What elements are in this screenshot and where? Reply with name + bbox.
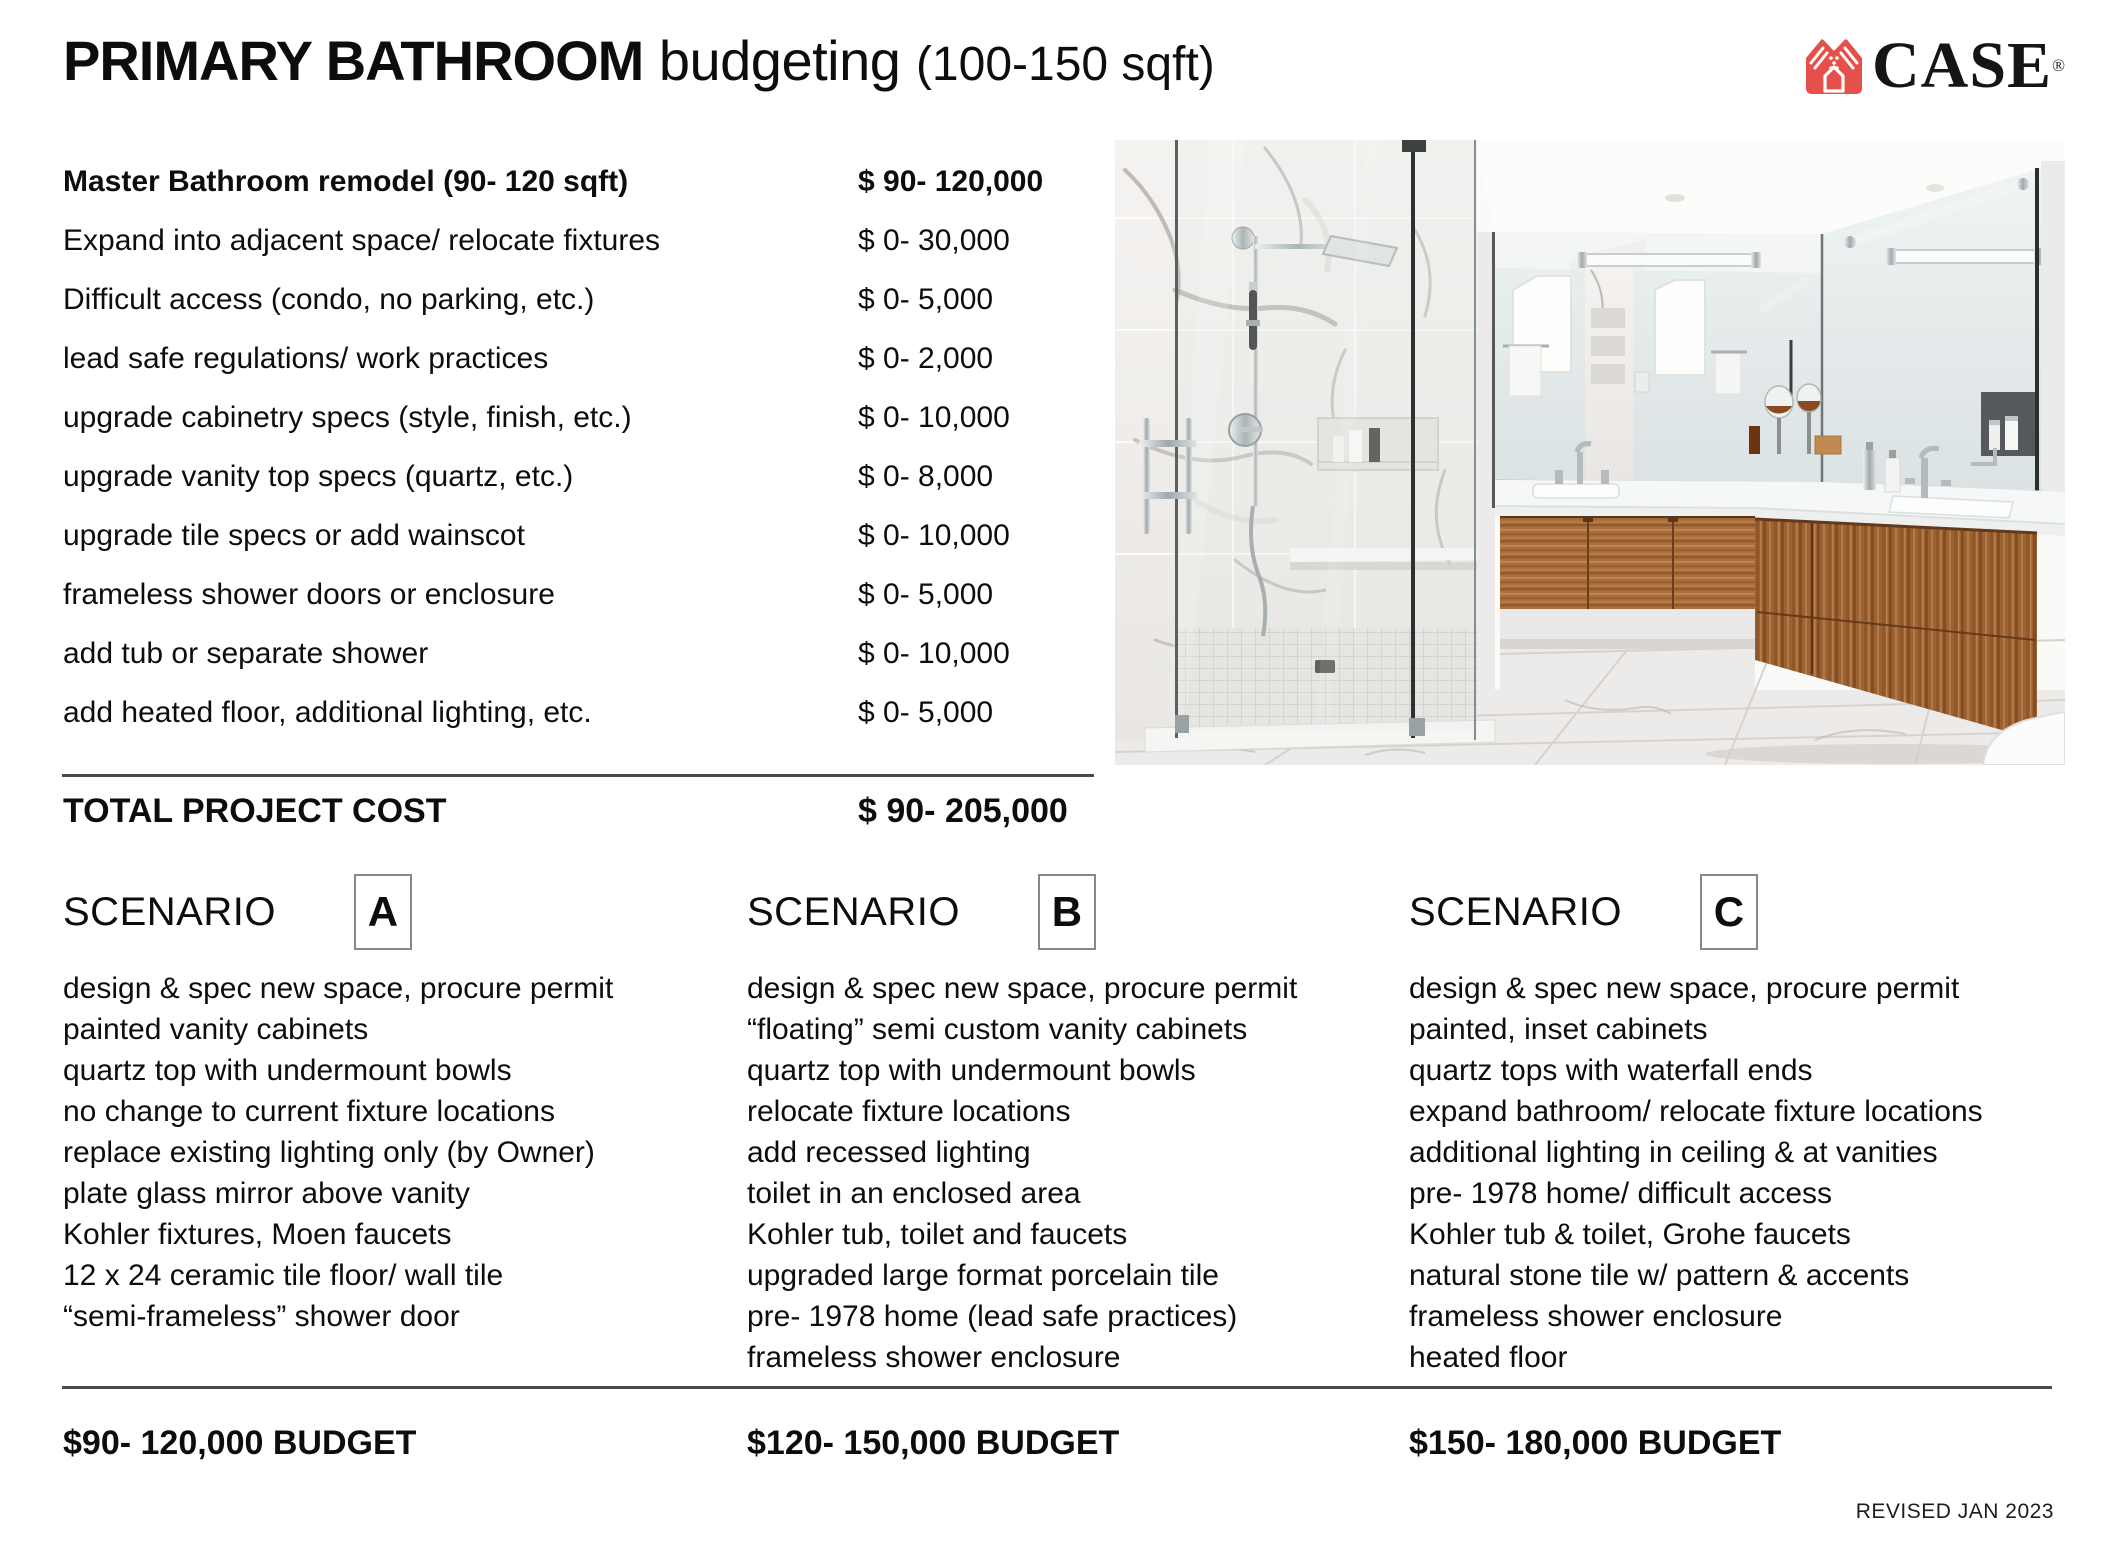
total-price: $ 90- 205,000 (858, 788, 1068, 834)
cost-item-price: $ 0- 30,000 (858, 211, 1010, 270)
list-item: painted, inset cabinets (1409, 1009, 2069, 1050)
table-row: add heated floor, additional lighting, e… (63, 683, 1093, 742)
list-item: Kohler fixtures, Moen faucets (63, 1214, 723, 1255)
registered-mark: ® (2052, 56, 2065, 76)
cost-item-label: add heated floor, additional lighting, e… (63, 696, 592, 729)
cost-item-price: $ 0- 10,000 (858, 506, 1010, 565)
list-item: frameless shower enclosure (747, 1337, 1407, 1378)
table-row: Expand into adjacent space/ relocate fix… (63, 211, 1093, 270)
table-row: add tub or separate shower $ 0- 10,000 (63, 624, 1093, 683)
table-row: upgrade cabinetry specs (style, finish, … (63, 388, 1093, 447)
page-title-main: PRIMARY BATHROOM (63, 29, 643, 92)
list-item: “semi-frameless” shower door (63, 1296, 723, 1337)
cost-item-label: upgrade vanity top specs (quartz, etc.) (63, 460, 573, 493)
budget-divider (62, 1386, 2052, 1389)
table-row: Master Bathroom remodel (90- 120 sqft) $… (63, 152, 1093, 211)
page-title-size: (100-150 sqft) (916, 38, 1215, 91)
list-item: natural stone tile w/ pattern & accents (1409, 1255, 2069, 1296)
list-item: heated floor (1409, 1337, 2069, 1378)
cost-item-price: $ 0- 5,000 (858, 270, 993, 329)
list-item: relocate fixture locations (747, 1091, 1407, 1132)
list-item: toilet in an enclosed area (747, 1173, 1407, 1214)
list-item: design & spec new space, procure permit (747, 968, 1407, 1009)
scenario-letter-box: B (1038, 874, 1096, 950)
budget-b: $120- 150,000 BUDGET (747, 1424, 1119, 1463)
cost-item-label: Difficult access (condo, no parking, etc… (63, 283, 594, 316)
scenario-item-list: design & spec new space, procure permit … (1409, 968, 2069, 1378)
case-house-icon (1802, 36, 1866, 96)
list-item: quartz top with undermount bowls (63, 1050, 723, 1091)
total-divider (62, 774, 1094, 777)
list-item: add recessed lighting (747, 1132, 1407, 1173)
list-item: quartz tops with waterfall ends (1409, 1050, 2069, 1091)
list-item: design & spec new space, procure permit (1409, 968, 2069, 1009)
total-row: TOTAL PROJECT COST $ 90- 205,000 (63, 788, 1093, 834)
page-title-sub: budgeting (659, 29, 901, 92)
scenario-letter-box: C (1700, 874, 1758, 950)
list-item: “floating” semi custom vanity cabinets (747, 1009, 1407, 1050)
shower-glass (1139, 140, 1495, 740)
budget-sheet: PRIMARY BATHROOM budgeting (100-150 sqft… (0, 0, 2112, 1548)
scenario-letter-box: A (354, 874, 412, 950)
scenario-a: SCENARIO A design & spec new space, proc… (63, 872, 723, 1337)
budget-c: $150- 180,000 BUDGET (1409, 1424, 1781, 1463)
table-row: frameless shower doors or enclosure $ 0-… (63, 565, 1093, 624)
scenario-label: SCENARIO (747, 890, 960, 935)
scenario-label: SCENARIO (63, 890, 276, 935)
scenario-item-list: design & spec new space, procure permit … (63, 968, 723, 1337)
list-item: Kohler tub & toilet, Grohe faucets (1409, 1214, 2069, 1255)
table-row: upgrade tile specs or add wainscot $ 0- … (63, 506, 1093, 565)
cost-table: Master Bathroom remodel (90- 120 sqft) $… (63, 152, 1093, 742)
cost-item-label: lead safe regulations/ work practices (63, 342, 548, 375)
list-item: frameless shower enclosure (1409, 1296, 2069, 1337)
cost-item-price: $ 0- 5,000 (858, 683, 993, 742)
total-label: TOTAL PROJECT COST (63, 792, 446, 830)
case-logo: CASE ® (1802, 36, 2065, 96)
list-item: pre- 1978 home (lead safe practices) (747, 1296, 1407, 1337)
list-item: Kohler tub, toilet and faucets (747, 1214, 1407, 1255)
revised-date: REVISED JAN 2023 (1856, 1500, 2054, 1524)
list-item: pre- 1978 home/ difficult access (1409, 1173, 2069, 1214)
cost-item-price: $ 0- 10,000 (858, 624, 1010, 683)
scenario-item-list: design & spec new space, procure permit … (747, 968, 1407, 1378)
cost-item-label: add tub or separate shower (63, 637, 428, 670)
cost-item-label: Expand into adjacent space/ relocate fix… (63, 224, 660, 257)
list-item: expand bathroom/ relocate fixture locati… (1409, 1091, 2069, 1132)
table-row: upgrade vanity top specs (quartz, etc.) … (63, 447, 1093, 506)
case-logo-text: CASE (1872, 36, 2052, 96)
list-item: replace existing lighting only (by Owner… (63, 1132, 723, 1173)
cost-item-price: $ 0- 2,000 (858, 329, 993, 388)
list-item: painted vanity cabinets (63, 1009, 723, 1050)
list-item: no change to current fixture locations (63, 1091, 723, 1132)
list-item: quartz top with undermount bowls (747, 1050, 1407, 1091)
cost-item-price: $ 0- 8,000 (858, 447, 993, 506)
list-item: upgraded large format porcelain tile (747, 1255, 1407, 1296)
list-item: plate glass mirror above vanity (63, 1173, 723, 1214)
cost-item-label: upgrade tile specs or add wainscot (63, 519, 525, 552)
scenario-c: SCENARIO C design & spec new space, proc… (1409, 872, 2069, 1378)
list-item: design & spec new space, procure permit (63, 968, 723, 1009)
scenario-b: SCENARIO B design & spec new space, proc… (747, 872, 1407, 1378)
cost-item-label: Master Bathroom remodel (90- 120 sqft) (63, 165, 628, 198)
list-item: additional lighting in ceiling & at vani… (1409, 1132, 2069, 1173)
cost-item-price: $ 0- 10,000 (858, 388, 1010, 447)
budget-a: $90- 120,000 BUDGET (63, 1424, 416, 1463)
page-title: PRIMARY BATHROOM budgeting (100-150 sqft… (63, 24, 1215, 102)
table-row: Difficult access (condo, no parking, etc… (63, 270, 1093, 329)
scenario-label: SCENARIO (1409, 890, 1622, 935)
cost-item-price: $ 0- 5,000 (858, 565, 993, 624)
bathroom-photo (1115, 140, 2065, 765)
table-row: lead safe regulations/ work practices $ … (63, 329, 1093, 388)
cost-item-label: upgrade cabinetry specs (style, finish, … (63, 401, 632, 434)
cost-item-label: frameless shower doors or enclosure (63, 578, 555, 611)
list-item: 12 x 24 ceramic tile floor/ wall tile (63, 1255, 723, 1296)
cost-item-price: $ 90- 120,000 (858, 152, 1043, 211)
